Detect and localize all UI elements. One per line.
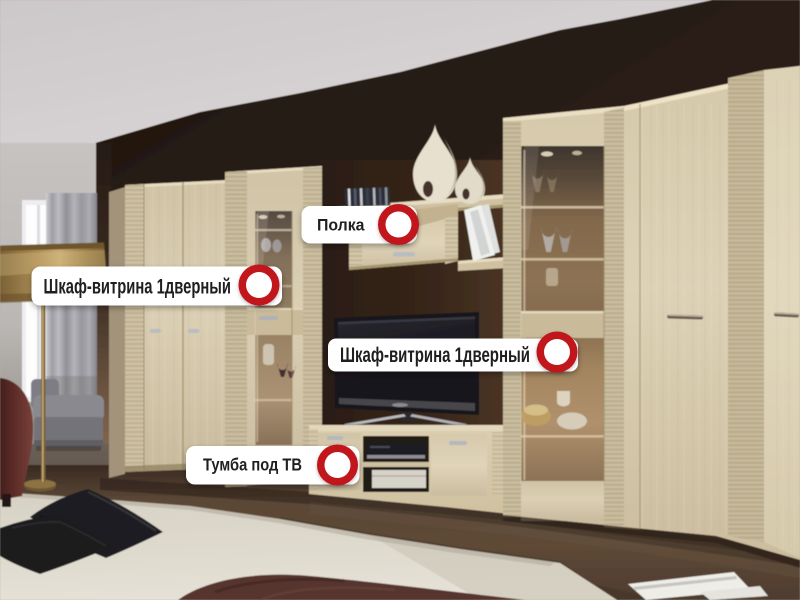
svg-text:Тумба под ТВ: Тумба под ТВ xyxy=(203,455,302,475)
svg-text:Полка: Полка xyxy=(317,217,365,235)
svg-text:Шкаф-витрина 1дверный: Шкаф-витрина 1дверный xyxy=(340,344,530,367)
svg-text:Шкаф-витрина 1дверный: Шкаф-витрина 1дверный xyxy=(44,276,232,299)
